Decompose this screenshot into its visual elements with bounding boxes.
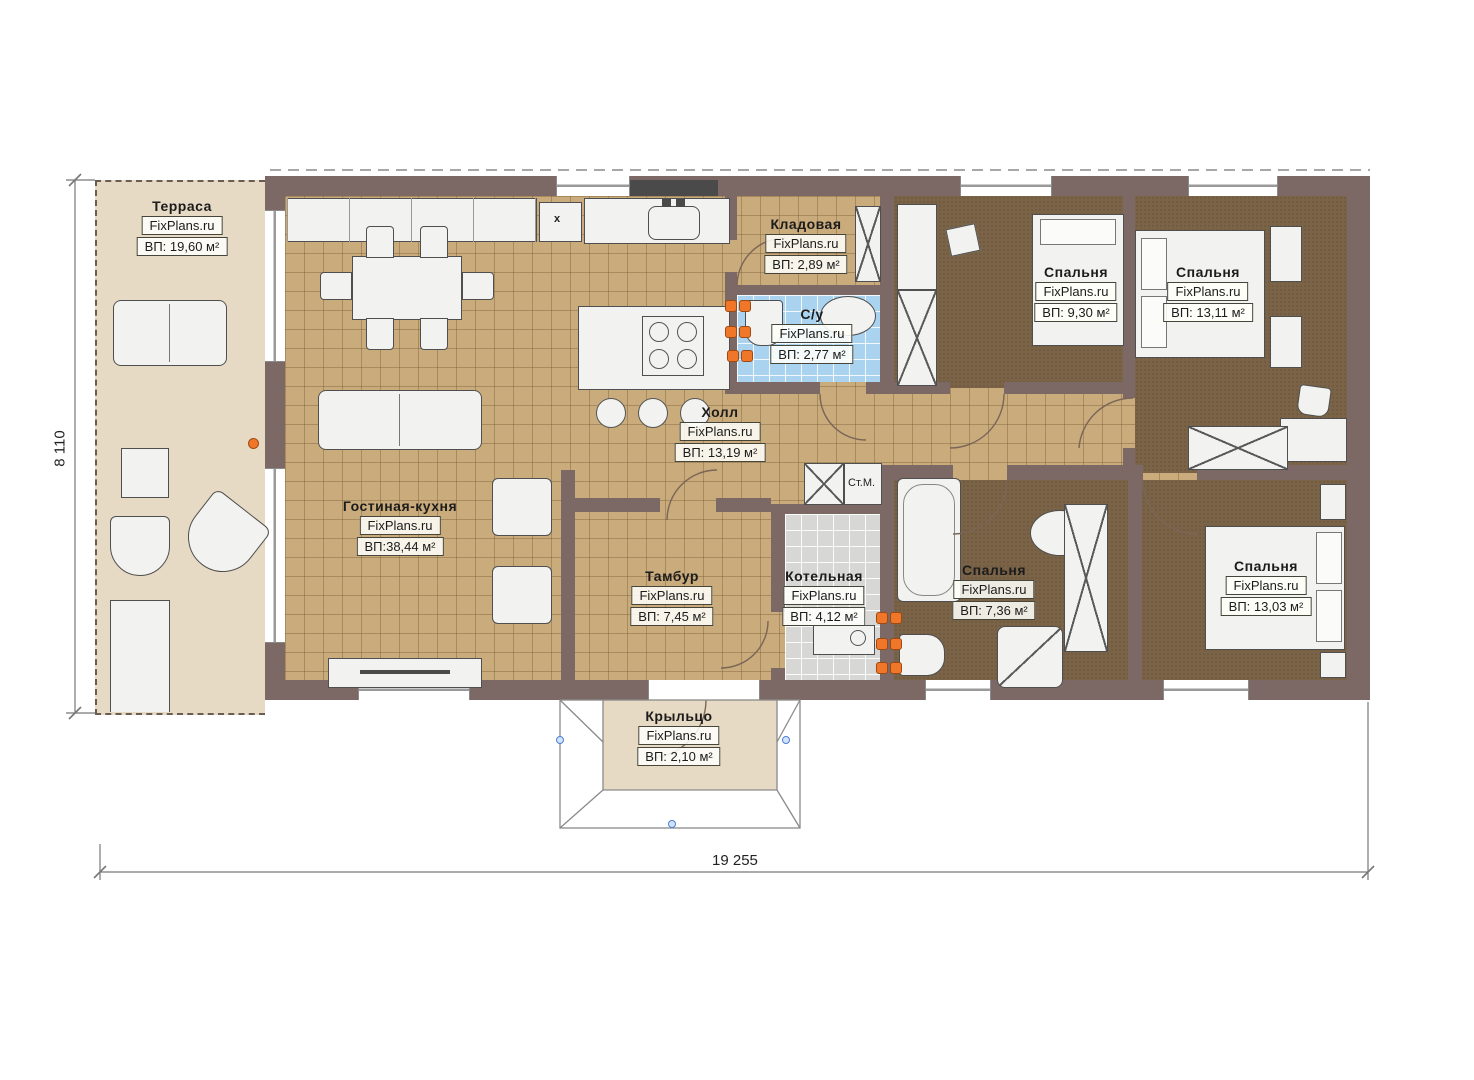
room-name: Холл: [675, 404, 766, 420]
bar-stool-1: [596, 398, 626, 428]
nightstand-1311-b: [1270, 316, 1302, 368]
dining-table: [352, 256, 462, 320]
sink-knob-1: [662, 199, 671, 207]
room-name: С/у: [770, 306, 853, 322]
dining-chair-2: [420, 226, 448, 258]
burner-1: [649, 322, 669, 342]
range-hood: [630, 180, 718, 196]
room-brand[interactable]: FixPlans.ru: [783, 586, 864, 605]
kitchen-unit-x: [539, 202, 582, 242]
porch-grip-left[interactable]: [556, 736, 564, 744]
room-name: Спальня: [1034, 264, 1117, 280]
dining-chair-3: [366, 318, 394, 350]
wall-su-bottom-a: [725, 382, 820, 394]
sink-knob-2: [676, 199, 685, 207]
dining-chair-4: [420, 318, 448, 350]
window-top-kitchen: [556, 176, 630, 196]
dining-chair-5: [320, 272, 352, 300]
bed-1303-pillow-1: [1316, 532, 1342, 584]
room-area: ВП: 2,10 м²: [637, 747, 720, 766]
terrace-lounge: [110, 600, 170, 712]
room-area: ВП: 2,89 м²: [764, 255, 847, 274]
room-brand[interactable]: FixPlans.ru: [359, 516, 440, 535]
radiator-su-2: [725, 326, 751, 338]
armchair-1: [492, 478, 552, 536]
room-area: ВП: 7,45 м²: [630, 607, 713, 626]
window-top-bedroom-930: [960, 176, 1052, 196]
wall-bedrooms-divider-b: [1123, 448, 1135, 465]
room-name: Спальня: [952, 562, 1035, 578]
dresser-1311: [1188, 426, 1288, 470]
wall-tambour-top-b: [716, 498, 771, 512]
window-bottom-bath: [925, 680, 991, 700]
kitchen-counter-divisions: [287, 198, 537, 242]
kitchen-sink: [648, 206, 700, 240]
burner-3: [649, 349, 669, 369]
burner-4: [677, 349, 697, 369]
room-name: Терраса: [137, 198, 228, 214]
room-brand[interactable]: FixPlans.ru: [141, 216, 222, 235]
wall-bath-bed-divider: [1128, 480, 1142, 680]
wall-hall-bottom-b: [1007, 465, 1143, 480]
armchair-2: [492, 566, 552, 624]
wall-kladovaya-su: [725, 285, 882, 295]
wall-bedrooms-divider: [1123, 196, 1135, 398]
desk-chair-1311: [1296, 384, 1332, 418]
dining-chair-1: [366, 226, 394, 258]
room-brand[interactable]: FixPlans.ru: [679, 422, 760, 441]
nightstand-1311-a: [1270, 226, 1302, 282]
dimension-width: 19 255: [712, 852, 758, 869]
wall-right: [1347, 176, 1370, 700]
nightstand-1303-b: [1320, 652, 1346, 678]
window-bottom-bedroom-1303: [1163, 680, 1249, 700]
wardrobe-930-plain: [897, 204, 937, 290]
tv: [360, 670, 450, 674]
window-top-bedroom-1311: [1188, 176, 1278, 196]
room-area: ВП: 4,12 м²: [782, 607, 865, 626]
room-brand[interactable]: FixPlans.ru: [1225, 576, 1306, 595]
front-door: [648, 680, 760, 700]
room-name: Крыльцо: [637, 708, 720, 724]
radiator-su-1: [725, 300, 751, 312]
porch-grip-right[interactable]: [782, 736, 790, 744]
storage-shelf: [855, 206, 881, 282]
terrace-door-upper: [265, 210, 285, 362]
room-label-vestibule: Тамбур FixPlans.ru ВП: 7,45 м²: [630, 568, 713, 626]
bar-stool-2: [638, 398, 668, 428]
room-area: ВП: 7,36 м²: [952, 601, 1035, 620]
room-name: Кладовая: [764, 216, 847, 232]
nightstand-1303-a: [1320, 484, 1346, 520]
dimension-height: 8 110: [52, 430, 69, 466]
room-label-porch: Крыльцо FixPlans.ru ВП: 2,10 м²: [637, 708, 720, 766]
room-area: ВП: 19,60 м²: [137, 237, 228, 256]
terrace-sofa: [113, 300, 227, 366]
wall-kladovaya-left-b: [725, 272, 737, 285]
room-area: ВП: 13,19 м²: [675, 443, 766, 462]
radiator-bath-1: [876, 612, 902, 624]
porch-grip-bottom[interactable]: [668, 820, 676, 828]
hall-cabinet: [804, 463, 844, 505]
room-label-living-kitchen: Гостиная-кухня FixPlans.ru ВП:38,44 м²: [343, 498, 457, 556]
radiator-su-3: [727, 350, 753, 362]
terrace-sofa-divider: [169, 304, 170, 362]
room-brand[interactable]: FixPlans.ru: [771, 324, 852, 343]
room-brand[interactable]: FixPlans.ru: [1167, 282, 1248, 301]
terrace-table: [121, 448, 169, 498]
shower: [997, 626, 1063, 688]
room-name: Спальня: [1221, 558, 1312, 574]
room-name: Котельная: [782, 568, 865, 584]
wall-tambour-boiler-b: [771, 668, 785, 680]
terrace-chair-1: [110, 516, 170, 576]
desk-1311: [1280, 418, 1347, 462]
wall-boiler-top: [771, 504, 880, 514]
room-label-storage: Кладовая FixPlans.ru ВП: 2,89 м²: [764, 216, 847, 274]
wall-tambour-top-a: [561, 498, 660, 512]
bed-1303-pillow-2: [1316, 590, 1342, 642]
room-label-bedroom-1311: Спальня FixPlans.ru ВП: 13,11 м²: [1163, 264, 1253, 322]
room-area: ВП: 13,03 м²: [1221, 597, 1312, 616]
room-label-bedroom-930: Спальня FixPlans.ru ВП: 9,30 м²: [1034, 264, 1117, 322]
wall-kladovaya-right: [880, 196, 894, 388]
room-brand[interactable]: FixPlans.ru: [765, 234, 846, 253]
room-label-bathroom: С/у FixPlans.ru ВП: 2,77 м²: [770, 306, 853, 364]
room-area: ВП: 9,30 м²: [1034, 303, 1117, 322]
terrace-wall-light: [248, 438, 259, 449]
boiler-dial: [850, 630, 866, 646]
wardrobe-930-x: [897, 290, 937, 386]
room-area: ВП: 2,77 м²: [770, 345, 853, 364]
bath-toilet: [899, 634, 945, 676]
dining-chair-6: [462, 272, 494, 300]
washing-machine-label: Ст.М.: [848, 477, 875, 489]
living-sofa-divider: [399, 394, 400, 446]
room-brand[interactable]: FixPlans.ru: [631, 586, 712, 605]
wall-su-bottom-b: [866, 382, 894, 394]
room-area: ВП: 13,11 м²: [1163, 303, 1253, 322]
room-name: Тамбур: [630, 568, 713, 584]
room-brand[interactable]: FixPlans.ru: [1035, 282, 1116, 301]
room-label-terrace: Терраса FixPlans.ru ВП: 19,60 м²: [137, 198, 228, 256]
room-brand[interactable]: FixPlans.ru: [638, 726, 719, 745]
room-label-bedroom-1303: Спальня FixPlans.ru ВП: 13,03 м²: [1221, 558, 1312, 616]
room-name: Спальня: [1163, 264, 1253, 280]
kitchen-unit-x-label: x: [554, 213, 560, 225]
burner-2: [677, 322, 697, 342]
room-label-boiler: Котельная FixPlans.ru ВП: 4,12 м²: [782, 568, 865, 626]
room-label-hall: Холл FixPlans.ru ВП: 13,19 м²: [675, 404, 766, 462]
floor-plan: x Ст.М.: [0, 0, 1474, 1080]
room-name: Гостиная-кухня: [343, 498, 457, 514]
wall-hall-top-b: [1004, 382, 1123, 394]
terrace-door-lower: [265, 468, 285, 643]
bathtub-inner: [903, 484, 955, 596]
room-brand[interactable]: FixPlans.ru: [953, 580, 1034, 599]
radiator-bath-2: [876, 638, 902, 650]
bed-930-pillow: [1040, 219, 1116, 245]
room-label-bedroom-736: Спальня FixPlans.ru ВП: 7,36 м²: [952, 562, 1035, 620]
radiator-bath-3: [876, 662, 902, 674]
room-area: ВП:38,44 м²: [356, 537, 443, 556]
living-sofa: [318, 390, 482, 450]
bath-wardrobe: [1064, 504, 1108, 652]
